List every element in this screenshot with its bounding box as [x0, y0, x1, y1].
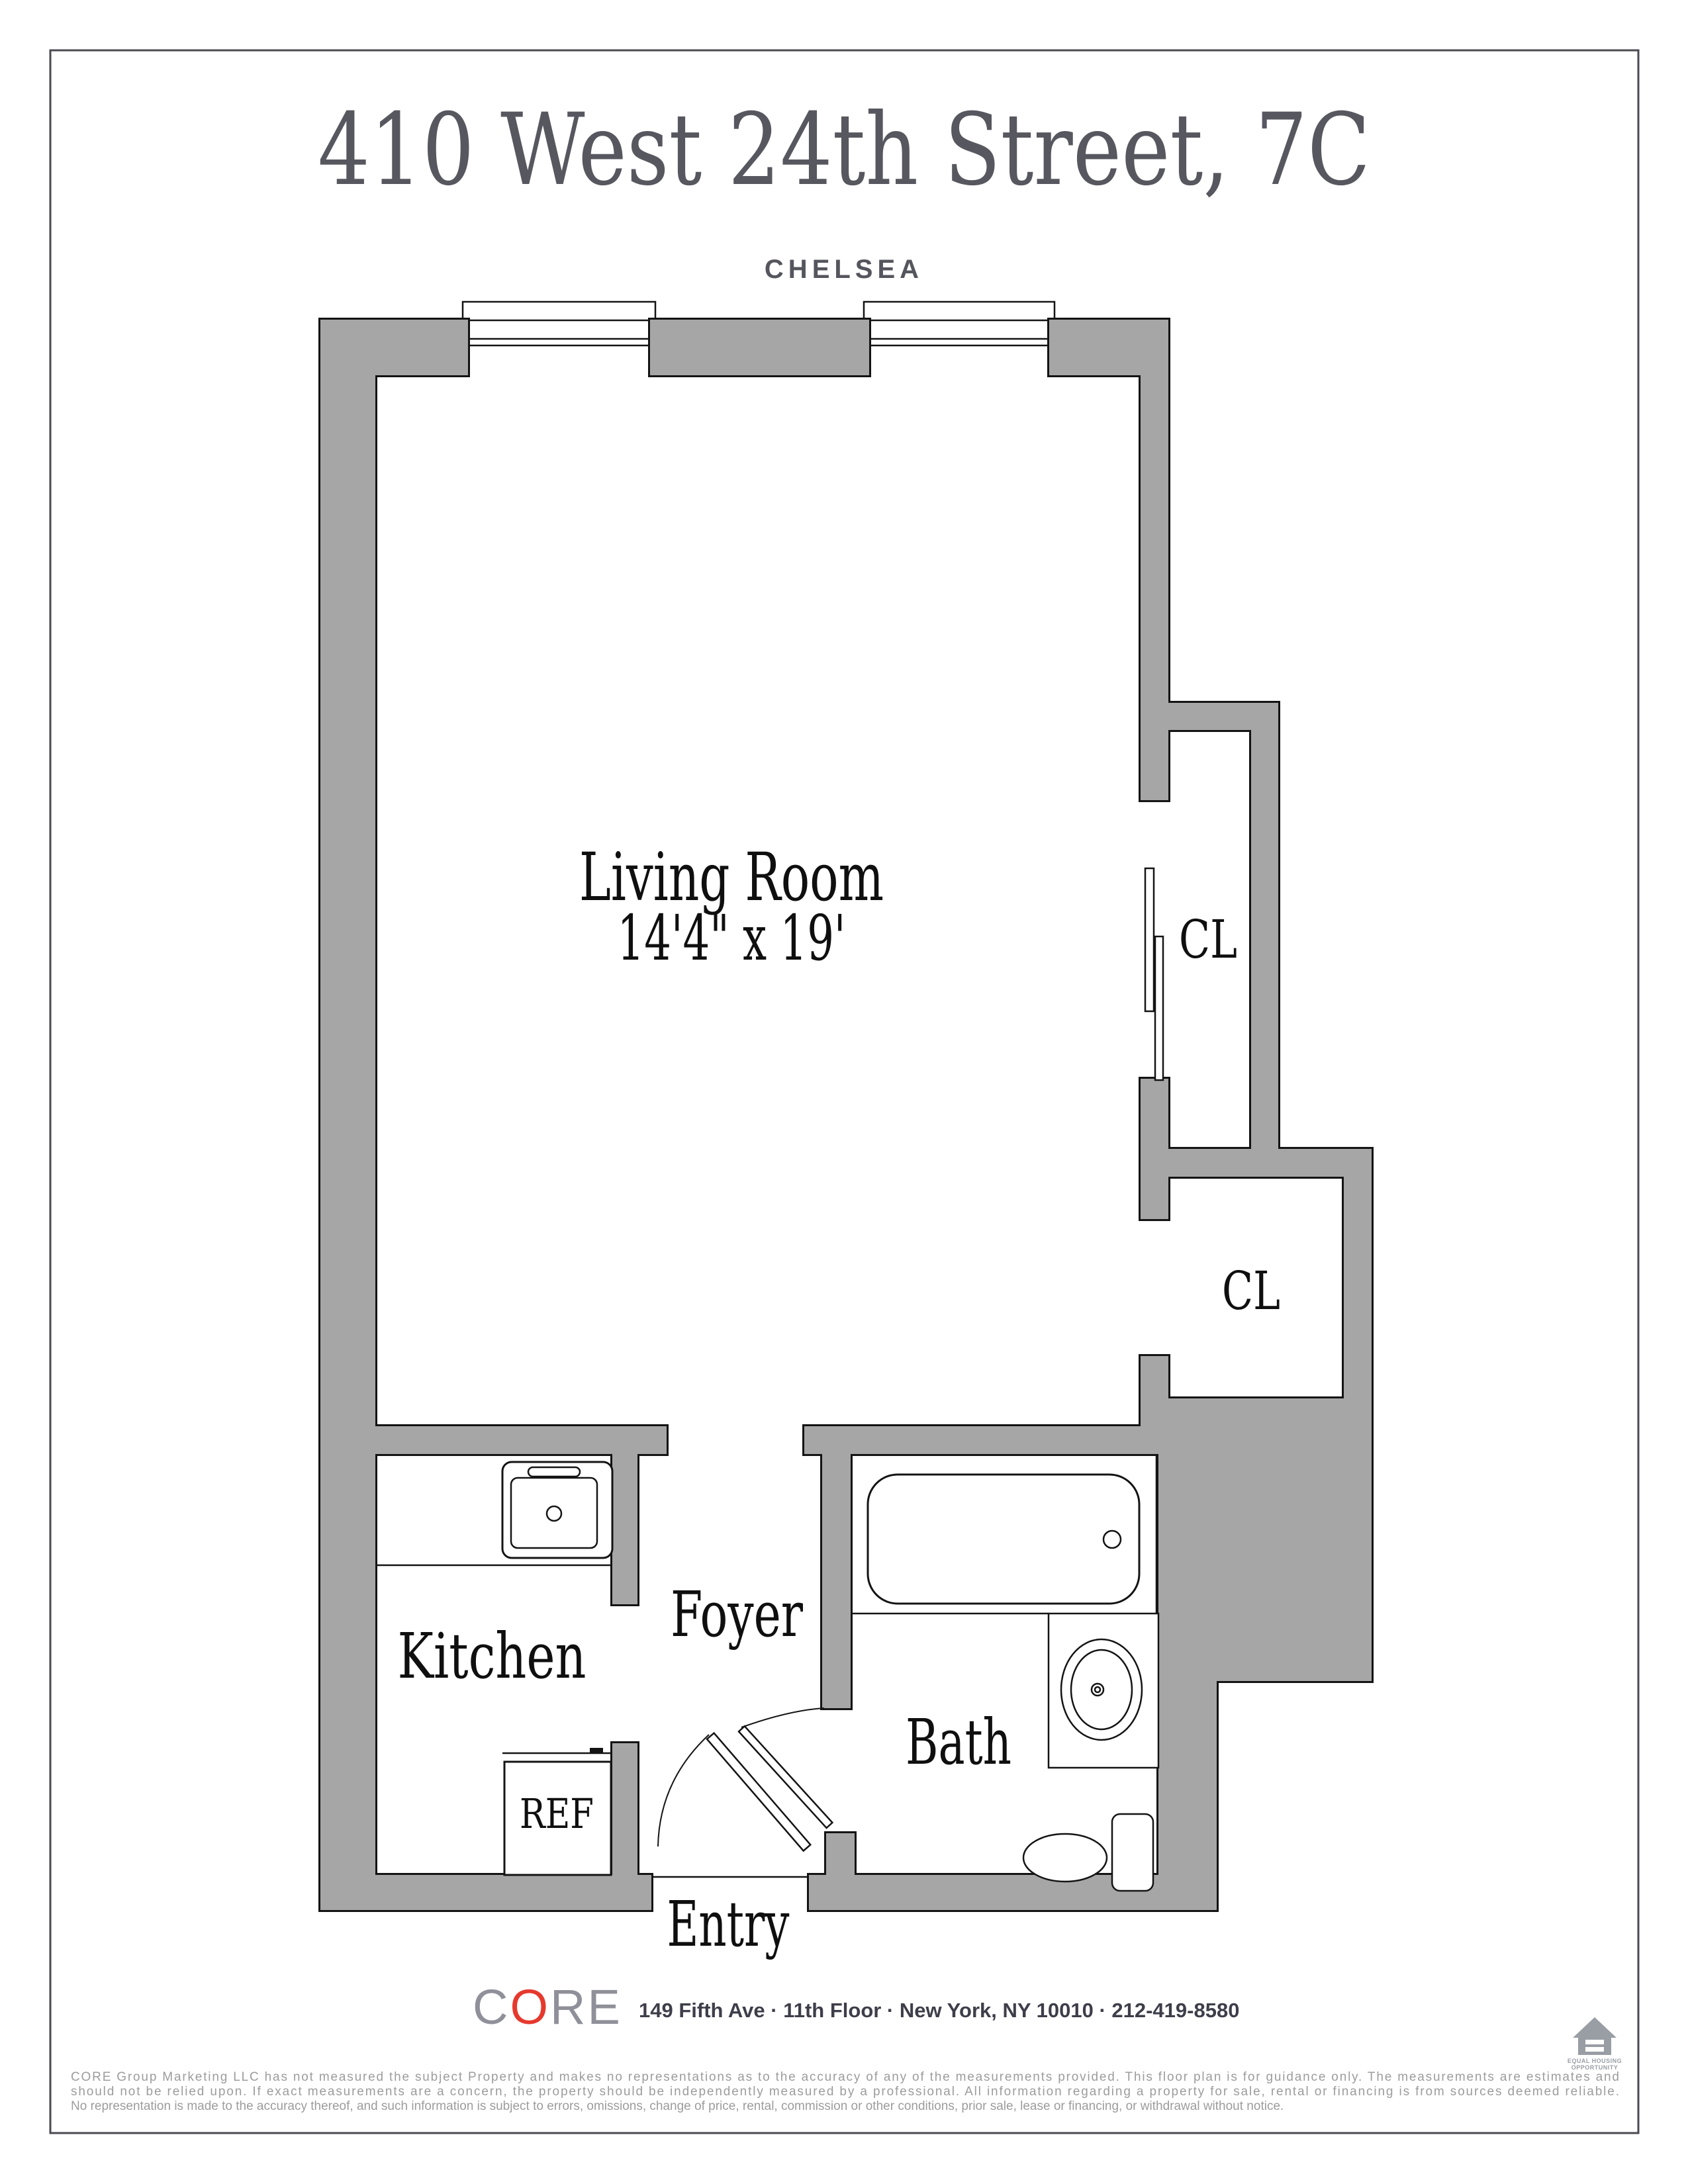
core-logo-o: O	[510, 1979, 550, 2034]
refrigerator-label: REF	[520, 1790, 594, 1838]
toilet-icon	[1023, 1834, 1107, 1882]
equal-housing-text-1: EQUAL HOUSING	[1568, 2058, 1622, 2064]
toilet-tank	[1112, 1814, 1153, 1891]
neighborhood-subtitle: CHELSEA	[765, 255, 923, 284]
disclaimer-line-1: CORE Group Marketing LLC has not measure…	[71, 2070, 1619, 2084]
closet-upper-label: CL	[1179, 909, 1237, 970]
closet-lower-label: CL	[1222, 1260, 1280, 1322]
ref-handle	[590, 1748, 603, 1754]
floor-plan-page: 410 West 24th Street, 7C CHELSEA	[0, 0, 1688, 2184]
sink-basin	[511, 1478, 597, 1548]
disclaimer-line-3: No representation is made to the accurac…	[71, 2099, 1284, 2113]
core-logo: CORE	[473, 1979, 622, 2034]
closet-door-icon	[1145, 868, 1163, 1080]
foyer-label: Foyer	[671, 1578, 803, 1651]
bath-label: Bath	[906, 1706, 1011, 1779]
living-room-dimensions: 14'4" x 19'	[618, 902, 846, 975]
entry-label: Entry	[667, 1888, 790, 1961]
equal-housing-icon	[1573, 2017, 1617, 2055]
doors	[651, 1708, 832, 1877]
disclaimer-line-2: should not be relied upon. If exact meas…	[71, 2085, 1619, 2099]
page-title: 410 West 24th Street, 7C	[318, 93, 1370, 208]
brokerage-address: 149 Fifth Ave · 11th Floor · New York, N…	[639, 1999, 1239, 2022]
bath-fixtures	[852, 1454, 1158, 1891]
door-swing-arc	[741, 1708, 824, 1727]
bathtub-icon	[868, 1475, 1139, 1604]
kitchen-label: Kitchen	[398, 1620, 586, 1693]
window-frames	[463, 302, 1055, 320]
window-icon	[864, 302, 1055, 320]
window-icon	[463, 302, 655, 320]
door-swing-arc	[658, 1735, 709, 1846]
sink-ledge	[528, 1467, 580, 1477]
